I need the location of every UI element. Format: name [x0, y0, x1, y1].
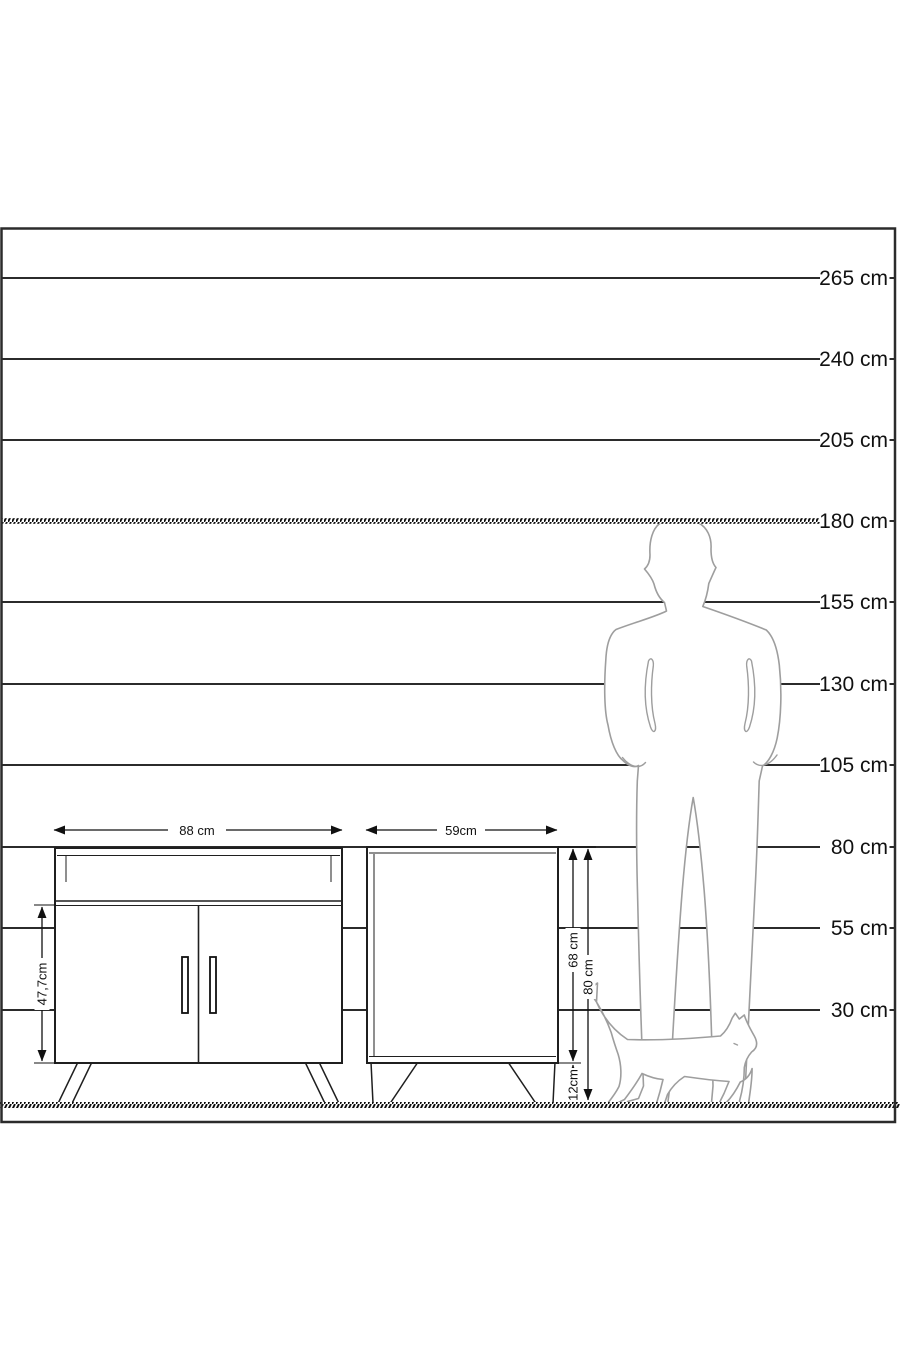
man-silhouette-icon	[605, 519, 781, 1105]
ruler-label-30: 30 cm	[831, 999, 888, 1022]
sideboard-handle-left	[182, 957, 188, 1013]
ruler-label-180: 180 cm	[819, 510, 888, 533]
ruler-line-240: 240 cm	[2, 348, 895, 371]
hatched-180cm-line	[2, 518, 820, 524]
ruler-label-155: 155 cm	[819, 591, 888, 614]
cabinet-leg-right	[508, 1062, 555, 1104]
sideboard	[55, 848, 342, 1104]
sideboard-leg-right	[305, 1062, 339, 1104]
cabinet-width-label: 59cm	[445, 823, 477, 838]
ruler-label-205: 205 cm	[819, 429, 888, 452]
hatched-floor-line	[0, 1102, 900, 1108]
ruler-line-155: 155 cm	[2, 591, 895, 614]
cabinet-width-dimension: 59cm	[366, 822, 557, 838]
ruler-label-55: 55 cm	[831, 917, 888, 940]
cabinet-leg-height-label: 12cm	[566, 1069, 581, 1101]
cabinet-leg-left	[371, 1062, 418, 1104]
sideboard-leg-left	[58, 1062, 92, 1104]
man-outline	[605, 519, 781, 1105]
ruler-label-80: 80 cm	[831, 836, 888, 859]
cabinet-body	[367, 847, 558, 1063]
sideboard-door-height-label: 47,7cm	[35, 963, 50, 1006]
ruler-line-265: 265 cm	[2, 267, 895, 290]
diagram-canvas: 265 cm 240 cm 205 cm 180 cm 155 cm 130 c…	[0, 0, 900, 1350]
cabinet	[367, 847, 558, 1104]
ruler-line-180-label: 180 cm	[819, 510, 894, 533]
size-comparison-diagram: 265 cm 240 cm 205 cm 180 cm 155 cm 130 c…	[0, 0, 900, 1350]
sideboard-handle-right	[210, 957, 216, 1013]
cabinet-height-dimensions: 68 cm 12cm 80 cm	[558, 847, 596, 1102]
cabinet-total-height-label: 80 cm	[581, 959, 596, 994]
sideboard-width-label: 88 cm	[179, 823, 214, 838]
ruler-label-105: 105 cm	[819, 754, 888, 777]
sideboard-width-dimension: 88 cm	[54, 822, 342, 838]
ruler-label-130: 130 cm	[819, 673, 888, 696]
cabinet-body-height-label: 68 cm	[566, 932, 581, 967]
ruler-label-240: 240 cm	[819, 348, 888, 371]
ruler-label-265: 265 cm	[819, 267, 888, 290]
ruler-line-205: 205 cm	[2, 429, 895, 452]
